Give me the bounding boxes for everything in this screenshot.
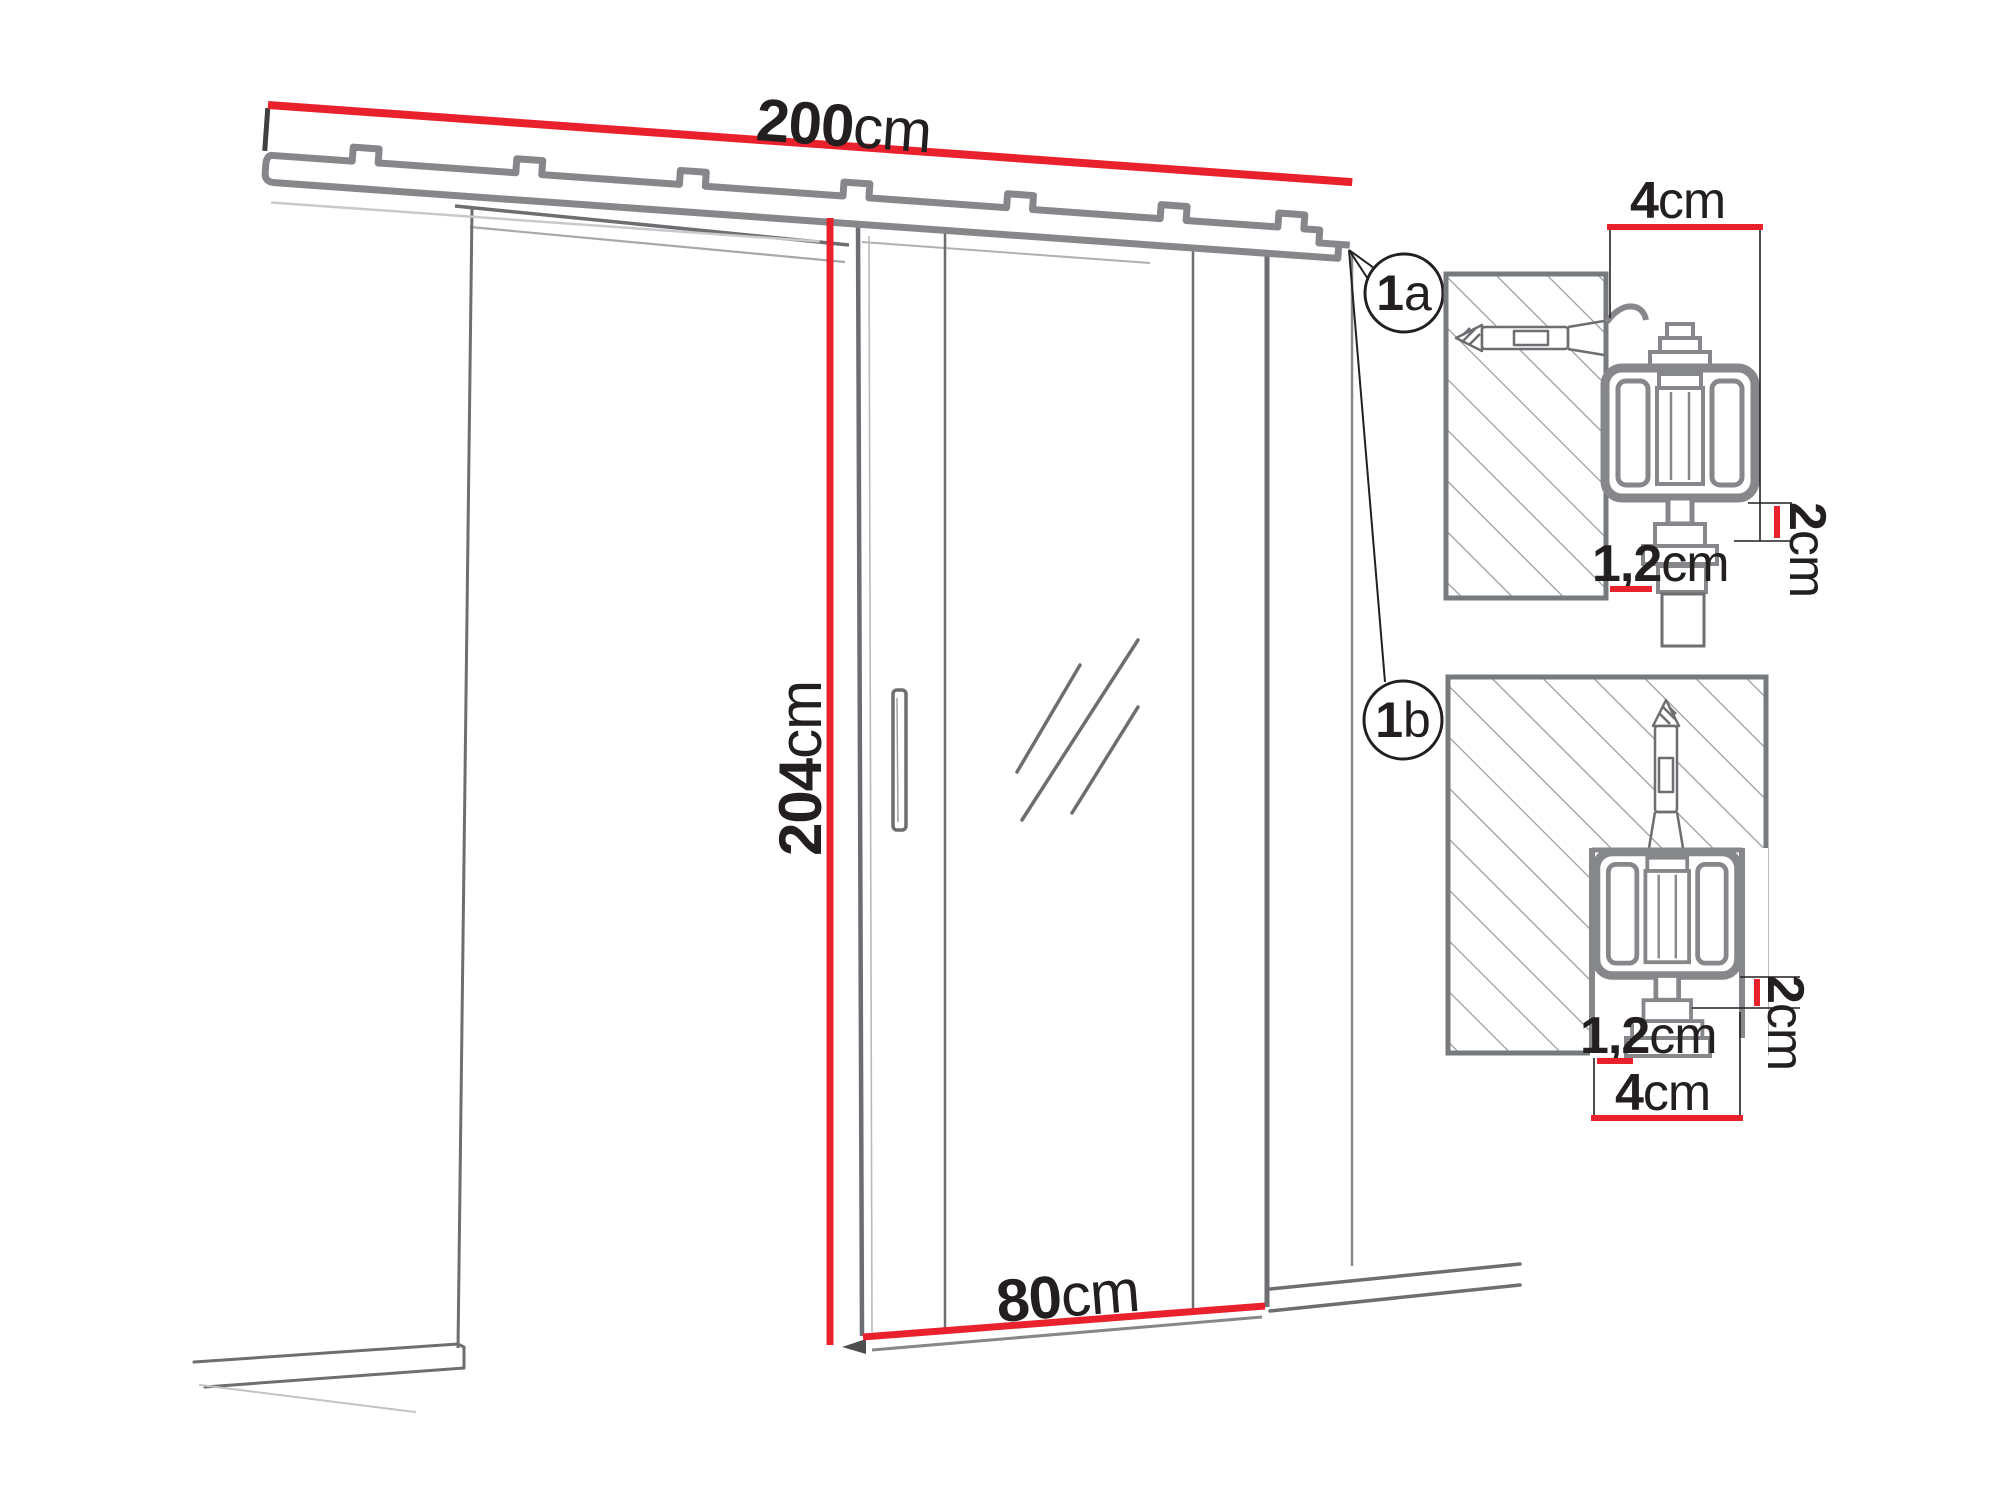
dimension-204cm: 204cm bbox=[767, 681, 834, 856]
callout-1b: 1b bbox=[1364, 681, 1442, 759]
sliding-door-panel bbox=[842, 222, 1267, 1354]
doorway-lintel-shadow bbox=[470, 227, 845, 262]
door-handle-highlight bbox=[897, 698, 898, 822]
baseboard-right bbox=[1270, 1264, 1520, 1311]
svg-text:1a: 1a bbox=[1376, 265, 1432, 321]
baseboard-left bbox=[194, 1344, 464, 1412]
sliding-door-diagram: 200cm 204cm 80cm 1a 1b 4cm 2cm 1,2cm bbox=[0, 0, 2000, 1500]
track-lip-hook bbox=[1607, 306, 1646, 322]
dimension-1-2cm: 1,2cm bbox=[1592, 535, 1729, 593]
door-section bbox=[1662, 594, 1704, 646]
detail-1b: 2cm 1,2cm 4cm bbox=[1448, 677, 1814, 1122]
callout-1a: 1a bbox=[1365, 254, 1443, 332]
door-face bbox=[858, 222, 1267, 1337]
floor-shadow-line bbox=[200, 1385, 415, 1412]
dimension-80cm: 80cm bbox=[994, 1257, 1142, 1335]
wall-section bbox=[1446, 274, 1606, 598]
door-corner-shadow bbox=[842, 1339, 866, 1354]
detail-1a: 4cm 2cm 1,2cm bbox=[1446, 172, 1836, 646]
diagram-canvas: 200cm 204cm 80cm 1a 1b 4cm 2cm 1,2cm bbox=[0, 0, 2000, 1500]
door-handle bbox=[893, 690, 906, 830]
doorway-left-jamb bbox=[458, 208, 472, 1348]
dimension-200cm: 200cm bbox=[754, 86, 933, 165]
dimension-4cm: 4cm bbox=[1630, 172, 1725, 230]
dimension-1-2cm: 1,2cm bbox=[1580, 1007, 1717, 1065]
dimension-4cm: 4cm bbox=[1615, 1064, 1710, 1122]
dimension-2cm: 2cm bbox=[1756, 975, 1814, 1070]
track-left-cap bbox=[265, 108, 268, 151]
roller-hanger bbox=[1650, 324, 1710, 368]
dimension-2cm: 2cm bbox=[1778, 502, 1836, 597]
svg-text:1b: 1b bbox=[1375, 692, 1431, 748]
